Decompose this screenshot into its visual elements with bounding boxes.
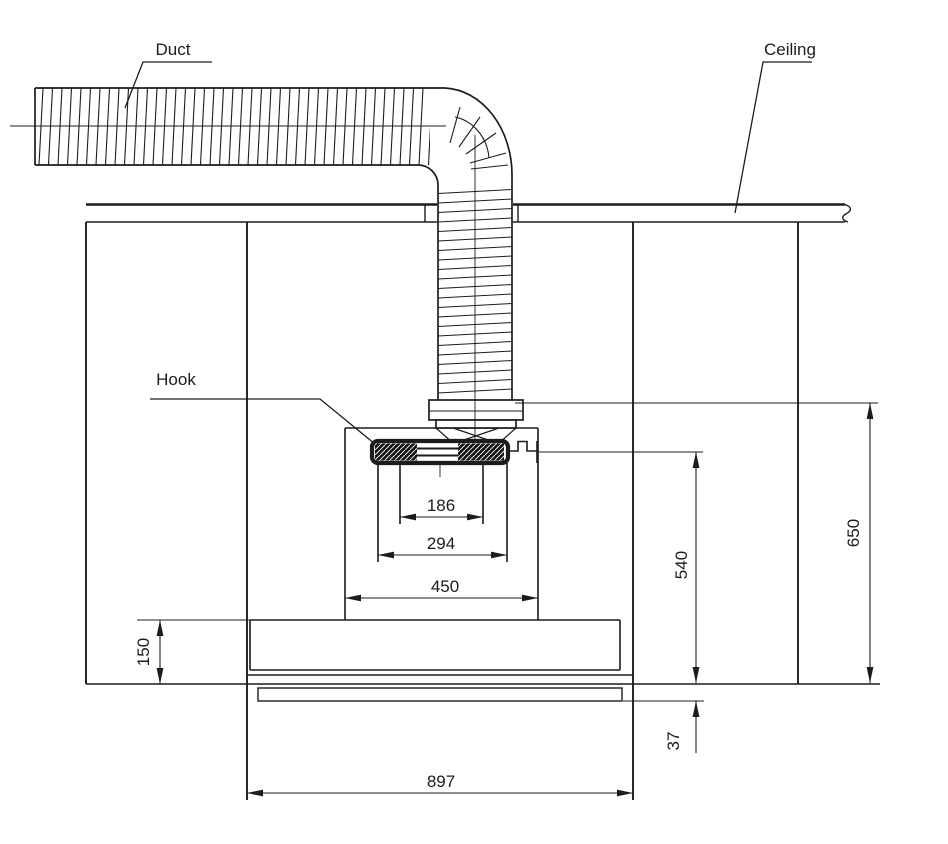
elbow-mid-curve [455,117,489,158]
mounting-rail-assembly [372,441,537,463]
lower-box [250,620,620,670]
installation-drawing: Duct Ceiling Hook 186 294 450 897 150 54… [0,0,948,844]
duct-horizontal-corrugation [36,88,430,165]
duct-horizontal-run [35,87,445,166]
collar-lower-band [436,420,516,428]
elbow-inner-curve [418,165,438,185]
ceiling-break-symbol [843,205,851,223]
centerlines [10,126,475,477]
hook-left [375,444,417,461]
elbow-spokes [450,107,508,169]
dim-value-450: 450 [431,577,459,596]
hook-label: Hook [156,370,196,389]
duct-label: Duct [156,40,191,59]
duct-collar [429,400,523,443]
dim-value-650: 650 [844,519,863,547]
drawing-canvas: Duct Ceiling Hook 186 294 450 897 150 54… [0,0,948,844]
ceiling-leader-line [735,62,812,213]
collar-upper-band [429,400,523,420]
dim-value-186: 186 [427,496,455,515]
dim-lower-section-height [137,620,252,684]
ceiling-label: Ceiling [764,40,816,59]
rail-end-bracket [508,441,537,463]
bottom-panel [258,688,622,701]
hook-right [458,444,504,461]
hook-leader-line [150,399,375,444]
dim-value-294: 294 [427,534,455,553]
dim-value-150: 150 [134,638,153,666]
dim-value-540: 540 [672,551,691,579]
dim-value-897: 897 [427,772,455,791]
dim-value-37: 37 [664,732,683,751]
